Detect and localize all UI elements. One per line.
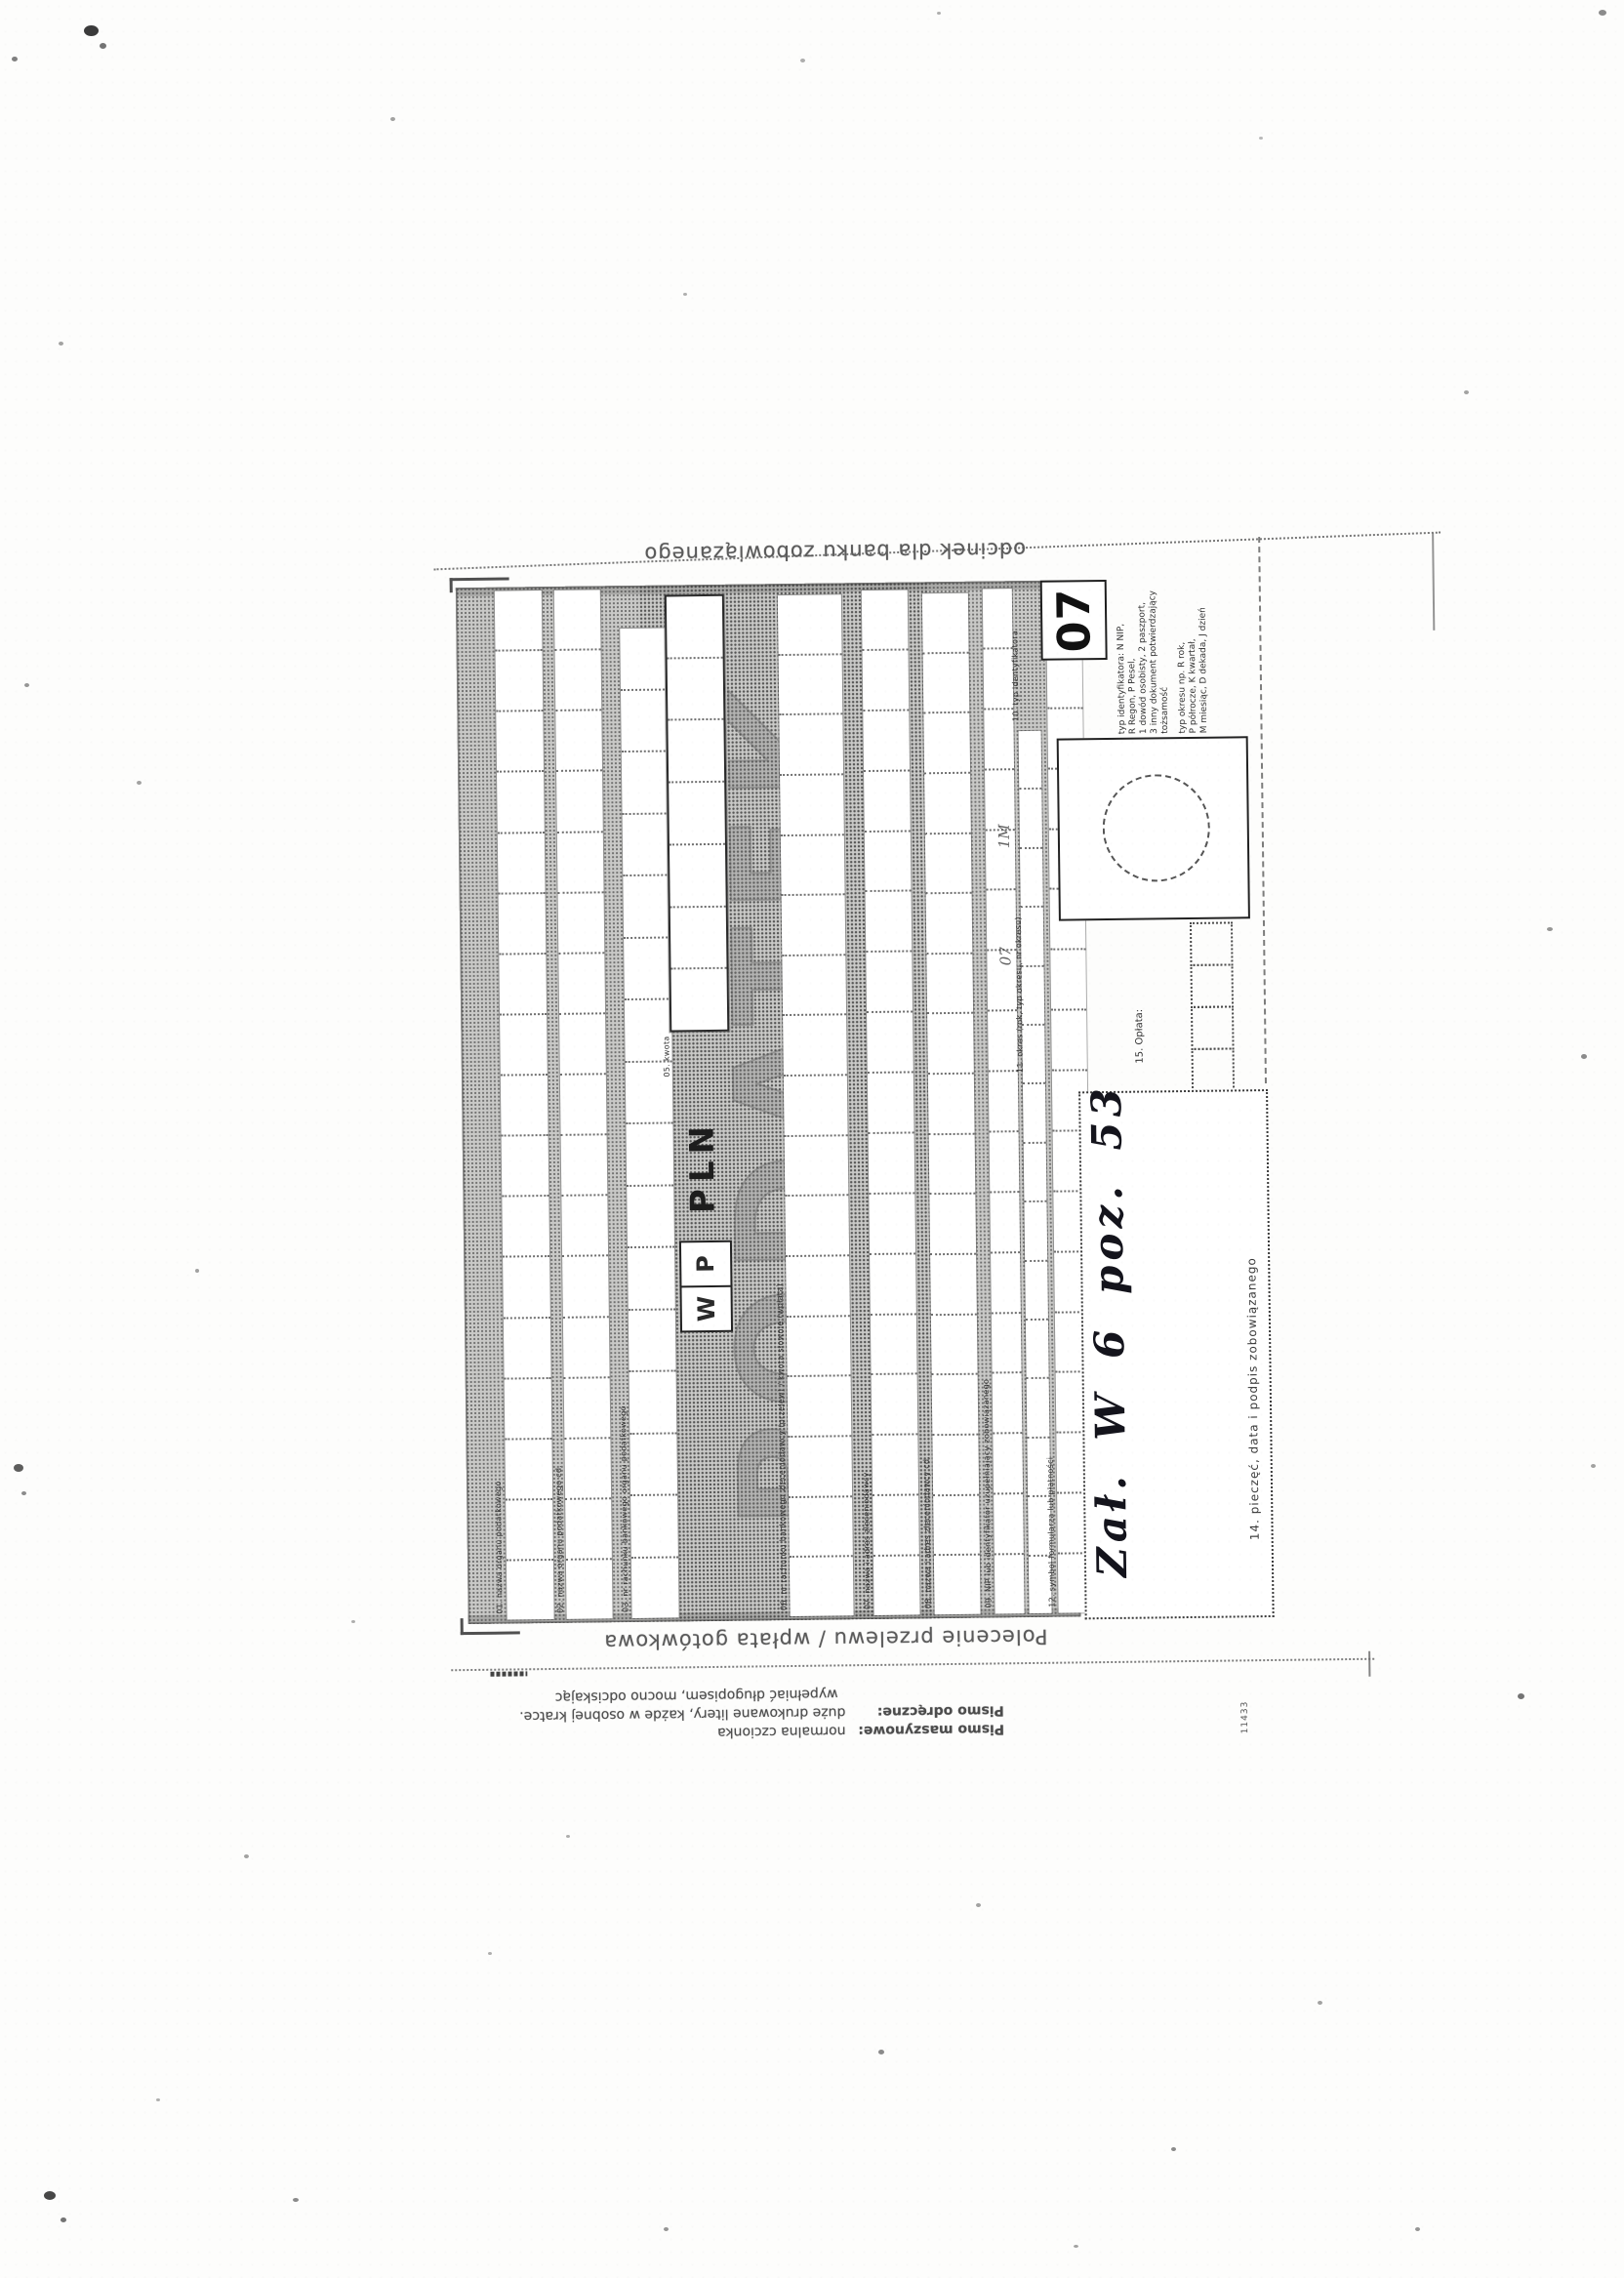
sheet-bottom-edge — [451, 1658, 1374, 1672]
grid-cell — [670, 845, 726, 908]
grid-cell — [564, 1378, 611, 1440]
scan-speckle — [976, 1903, 981, 1907]
grid-cell — [929, 1195, 976, 1255]
grid-cell — [631, 1558, 679, 1618]
grid-cell — [496, 651, 544, 712]
instruction-label: Pismo odręczne: — [850, 1700, 1004, 1721]
grid-cell — [1019, 790, 1042, 849]
grid-cell — [780, 775, 844, 835]
grid-cell — [499, 894, 547, 956]
currency-label: PLN — [682, 1119, 722, 1214]
scan-speckle — [1464, 390, 1469, 394]
grid-cell — [555, 712, 602, 773]
grid-cell — [789, 1497, 853, 1558]
grid-cell — [790, 1557, 854, 1615]
grid-cell — [932, 1436, 979, 1496]
grid-cell — [620, 628, 668, 690]
grid-cell — [504, 1318, 551, 1379]
field-02-label: 02. nazwa organu podatkowego cd. — [554, 1465, 565, 1613]
grid-cell — [866, 892, 913, 953]
grid-cell — [626, 1123, 673, 1186]
grid-cell — [623, 875, 670, 938]
grid-cell — [629, 1434, 677, 1496]
grid-cell — [865, 832, 912, 892]
grid-cell — [872, 1375, 918, 1436]
scan-speckle — [390, 117, 395, 121]
grid-cell — [565, 1499, 612, 1561]
scan-speckle — [244, 1854, 249, 1858]
oplata-cell — [1192, 1047, 1236, 1092]
grid-cell — [862, 590, 909, 650]
grid-cell — [500, 1015, 548, 1077]
grid-cell — [993, 1373, 1023, 1434]
grid-cell — [993, 1434, 1023, 1494]
waluta-box-p: P — [681, 1242, 731, 1288]
grid-cell — [923, 713, 970, 774]
grid-cell — [927, 1014, 974, 1075]
scan-speckle — [1259, 137, 1263, 140]
grid-cell — [784, 1076, 848, 1136]
grid-cell — [1051, 1010, 1087, 1071]
field-01-label: 01. nazwa organu podatkowego — [494, 1481, 505, 1613]
grid-cell — [926, 894, 973, 955]
waluta-box-w: W — [681, 1287, 731, 1331]
grid-cell — [667, 596, 723, 659]
grid-cell — [869, 1194, 915, 1254]
okres-mark-2: 07 — [996, 947, 1014, 965]
scan-speckle — [44, 2191, 56, 2200]
form-symbol-value: 07 — [1047, 588, 1101, 653]
grid-cell — [995, 1555, 1025, 1613]
grid-cell — [560, 1075, 607, 1136]
fill-instructions: Pismo maszynowe: normalna czcionka Pismo… — [515, 1682, 1004, 1743]
form-symbol-box: 07 — [1040, 580, 1108, 661]
scan-speckle — [195, 1269, 199, 1273]
grid-cell — [502, 1197, 549, 1258]
grid-cell — [1021, 908, 1044, 967]
grid-cell — [1023, 1084, 1046, 1144]
grid-cell — [985, 770, 1015, 831]
grid-cell — [558, 893, 605, 955]
scan-speckle — [12, 57, 18, 61]
sheet-corner-bottom-right — [1368, 1651, 1370, 1677]
scan-speckle — [100, 43, 106, 49]
grid-cell — [872, 1436, 918, 1496]
grid-cell — [779, 655, 843, 715]
grid-cell — [785, 1136, 849, 1197]
grid-cell — [669, 783, 725, 845]
grid-cell — [925, 834, 972, 894]
grid-cell — [501, 1076, 548, 1137]
grid-cell — [506, 1500, 553, 1562]
grid-cell — [554, 590, 601, 651]
grid-cell — [497, 772, 545, 834]
grid-cell — [498, 834, 546, 895]
grid-cell — [503, 1257, 550, 1319]
scan-speckle — [137, 781, 142, 785]
scan-speckle — [878, 2050, 884, 2054]
grid-cell — [507, 1561, 554, 1620]
grid-cell — [778, 594, 842, 655]
okres-mark-1: 1M — [995, 824, 1013, 848]
grid-cell — [564, 1439, 611, 1500]
grid-cell — [990, 1193, 1020, 1253]
scanned-page: { "scan": { "captions": { "top": "odcine… — [0, 0, 1624, 2278]
scan-speckle — [566, 1835, 570, 1838]
grid-cell — [863, 711, 910, 771]
grid-cell — [563, 1318, 610, 1379]
grid-cell — [928, 1075, 975, 1135]
grid-cell — [863, 650, 910, 711]
grid-cell — [788, 1377, 852, 1438]
scan-speckle — [1415, 2227, 1420, 2231]
grid-cell — [873, 1496, 919, 1557]
grid-cell — [983, 589, 1013, 649]
scan-speckle — [1581, 1054, 1587, 1059]
instruction-row-continuation: wypełniać długopisem, mocno odciskając — [515, 1684, 837, 1706]
field-15-boxes — [1190, 921, 1235, 1090]
grid-cell — [926, 955, 973, 1015]
grid-cell — [559, 1014, 606, 1076]
sheet-tick-bottom-left — [490, 1671, 527, 1676]
scan-speckle — [1599, 10, 1606, 16]
scan-speckle — [84, 25, 99, 36]
grid-cell — [1027, 1379, 1050, 1439]
grid-cell — [671, 969, 728, 1030]
grid-cell — [628, 1247, 675, 1310]
grid-cell — [866, 953, 913, 1013]
grid-cell — [502, 1136, 549, 1198]
grid-cell — [990, 1132, 1020, 1193]
grid-cell — [873, 1556, 920, 1614]
grid-cell — [629, 1310, 676, 1372]
grid-cell — [870, 1254, 916, 1315]
scan-speckle — [1318, 2001, 1322, 2005]
grid-cell — [621, 690, 669, 753]
scan-speckle — [1074, 2245, 1078, 2248]
legend-block: typ identyfikatora: N NIP,R Regon, P Pes… — [1116, 528, 1275, 734]
scan-speckle — [937, 12, 941, 15]
instruction-label: Pismo maszynowe: — [850, 1719, 1004, 1739]
field-06-boxes — [778, 594, 854, 1616]
grid-cell — [561, 1197, 608, 1258]
instruction-value: normalna czcionka — [717, 1721, 846, 1741]
field-07-label: 07. nazwa i adres zleceniodawcy — [862, 1472, 873, 1609]
grid-cell — [495, 590, 543, 652]
grid-cell — [867, 1013, 913, 1074]
grid-cell — [787, 1317, 851, 1377]
grid-cell — [1022, 1026, 1045, 1085]
grid-cell — [988, 1011, 1018, 1072]
grid-cell — [1019, 731, 1042, 791]
grid-cell — [566, 1560, 613, 1619]
handwritten-annotation: Zał. W 6 poz. 53 — [1082, 1083, 1136, 1577]
grid-cell — [624, 938, 671, 1000]
scan-speckle — [21, 1491, 26, 1495]
instruction-value: wypełniać długopisem, mocno odciskając — [555, 1684, 838, 1706]
grid-cell — [630, 1495, 678, 1558]
grid-corner-bottom-left — [461, 1617, 520, 1635]
grid-cell — [627, 1186, 674, 1248]
grid-cell — [783, 1016, 847, 1077]
grid-cell — [984, 649, 1014, 710]
grid-cell — [923, 653, 970, 713]
grid-cell — [929, 1134, 976, 1195]
scan-speckle — [1547, 927, 1553, 931]
grid-cell — [496, 712, 544, 773]
grid-cell — [932, 1375, 979, 1436]
grid-cell — [556, 772, 603, 834]
grid-cell — [1026, 1321, 1049, 1380]
scan-speckle — [1518, 1693, 1524, 1699]
field-15-label: 15. Opłata: — [1134, 1009, 1146, 1064]
oplata-cell — [1191, 1005, 1235, 1050]
grid-cell — [869, 1133, 915, 1194]
grid-cell — [505, 1379, 552, 1441]
grid-cell — [558, 954, 605, 1015]
grid-cell — [933, 1495, 980, 1556]
field-08-label: 08. nazwa i adres zleceniodawcy cd. — [922, 1456, 933, 1609]
legend-period: typ okresu np. R rok,P półrocze, K kwart… — [1176, 529, 1211, 733]
caption-bank-slip: odcinek dla banku zobowiązanego — [614, 538, 1055, 567]
grid-cell — [622, 752, 670, 814]
scan-speckle — [293, 2198, 299, 2202]
grid-cell — [994, 1494, 1024, 1555]
grid-cell — [989, 1072, 1019, 1132]
scan-speckle — [664, 2227, 669, 2231]
stamp-box — [1057, 736, 1250, 920]
scan-speckle — [1171, 2147, 1176, 2151]
grid-cell — [924, 774, 971, 834]
grid-cell — [1020, 849, 1043, 909]
grid-cell — [781, 835, 845, 896]
grid-cell — [629, 1371, 677, 1434]
scan-speckle — [59, 342, 63, 346]
grid-cell — [557, 833, 604, 894]
scan-speckle — [14, 1464, 23, 1472]
grid-cell — [1025, 1261, 1048, 1321]
grid-cell — [1024, 1144, 1047, 1203]
field-05-kwota-box — [665, 594, 729, 1033]
sheet-corner-top-right — [1432, 533, 1435, 631]
grid-cell — [922, 593, 969, 654]
scan-speckle — [24, 683, 29, 687]
grid-cell — [785, 1197, 849, 1257]
grid-cell — [782, 895, 846, 956]
grid-cell — [987, 891, 1017, 952]
grid-cell — [871, 1315, 917, 1375]
stamp-circle — [1102, 774, 1210, 882]
field-05-label: 05. kwota — [662, 1036, 671, 1077]
scan-speckle — [488, 1952, 492, 1955]
field-04-waluta-boxes: P W — [679, 1241, 733, 1333]
grid-cell — [499, 955, 547, 1016]
oplata-cell — [1190, 963, 1234, 1008]
grid-cell — [668, 720, 724, 783]
grid-cell — [555, 650, 602, 712]
field-10-label: 10. typ identyfikatora — [1010, 631, 1020, 721]
grid-cell — [991, 1253, 1021, 1314]
scan-speckle — [683, 293, 687, 296]
field-12-label: 12. symbol formularza lub płatności — [1046, 1457, 1057, 1607]
grid-cell — [931, 1315, 978, 1375]
scanned-transfer-form: odcinek dla banku zobowiązanego Poleceni… — [433, 521, 1464, 1812]
grid-cell — [868, 1073, 914, 1133]
scan-speckle — [351, 1620, 355, 1623]
grid-cell — [505, 1440, 552, 1501]
scan-speckle — [61, 2217, 66, 2222]
oplata-cell — [1190, 921, 1234, 966]
scan-speckle — [800, 59, 805, 62]
grid-cell — [782, 956, 846, 1016]
form-print-number: 11433 — [1240, 1701, 1250, 1734]
grid-cell — [670, 907, 727, 969]
grid-cell — [623, 814, 670, 876]
scan-speckle — [156, 2098, 160, 2101]
grid-cell — [934, 1556, 981, 1614]
grid-cell — [786, 1256, 850, 1317]
grid-cell — [562, 1257, 609, 1319]
grid-cell — [668, 659, 724, 721]
grid-cell — [788, 1437, 852, 1497]
grid-cell — [779, 715, 843, 776]
grid-cell — [930, 1255, 977, 1316]
grid-cell — [984, 710, 1014, 770]
grid-cell — [1022, 966, 1045, 1026]
caption-form-title: Polecenie przelewu / wpłata gotówkowa — [603, 1625, 1048, 1654]
grid-cell — [992, 1314, 1022, 1374]
legend-identifier: typ identyfikatora: N NIP,R Regon, P Pes… — [1116, 530, 1172, 735]
grid-cell — [1024, 1202, 1047, 1262]
grid-cell — [1050, 951, 1086, 1011]
scan-speckle — [1591, 1464, 1596, 1468]
grid-cell — [561, 1135, 608, 1197]
grid-cell — [864, 771, 911, 832]
